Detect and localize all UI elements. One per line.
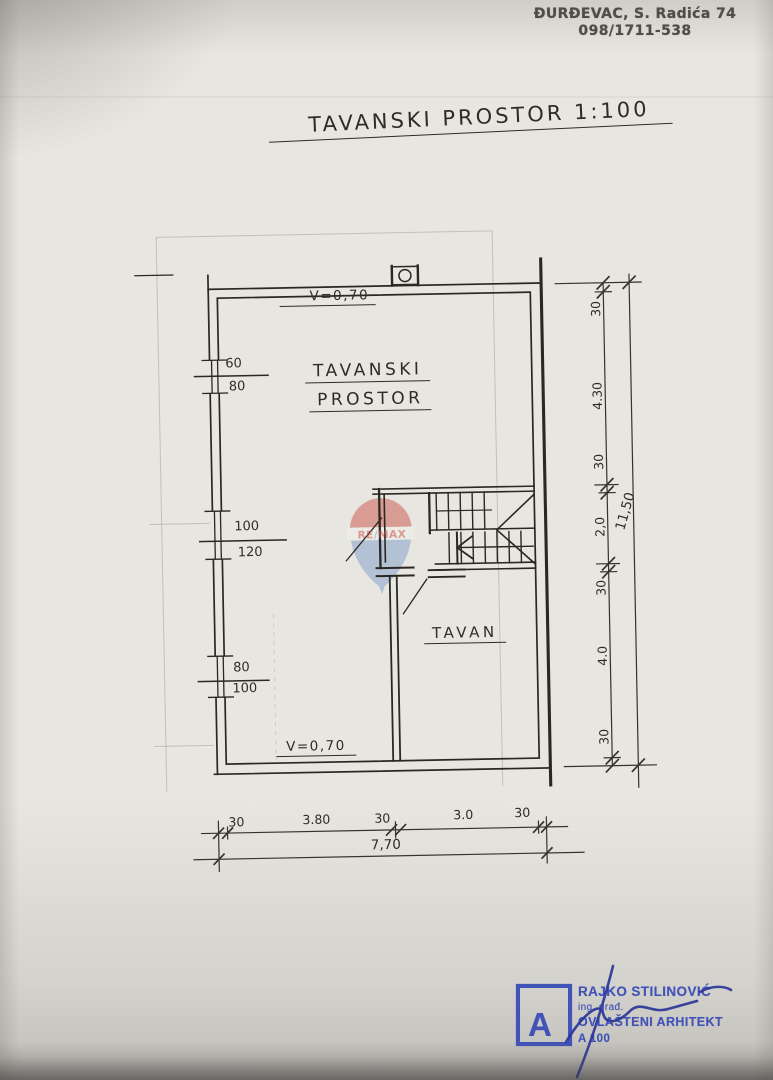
stamp-role: OVLAŠTENI ARHITEKT bbox=[578, 1015, 723, 1029]
window2-width: 100 bbox=[234, 519, 259, 534]
window1-height: 80 bbox=[229, 379, 246, 394]
dim-bottom-overall: 7,70 bbox=[371, 837, 401, 854]
window2-height: 120 bbox=[238, 545, 263, 560]
height-label-top-text: V=0,70 bbox=[279, 287, 375, 307]
room-label-tavan-text: TAVAN bbox=[424, 623, 506, 645]
walls bbox=[135, 259, 551, 793]
drawing-layer: RE/MAX TAVANSKI PROSTOR 1:100 V=0,70 TAV… bbox=[0, 0, 773, 1080]
dim-bottom-2: 30 bbox=[374, 810, 390, 825]
dim-bottom-1: 3.80 bbox=[302, 812, 330, 828]
window1-width: 60 bbox=[225, 356, 242, 371]
dim-bottom-0: 30 bbox=[228, 814, 244, 829]
stamp-name: RAJKO STILINOVIĆ bbox=[578, 984, 711, 999]
remax-max: MAX bbox=[378, 529, 406, 542]
dim-right-5: 4.0 bbox=[595, 646, 610, 666]
room-label-prostor-text: PROSTOR bbox=[309, 388, 432, 412]
paper-bottom-shadow bbox=[0, 1042, 773, 1080]
dim-right-3: 2,0 bbox=[592, 517, 607, 537]
chimney-symbol bbox=[392, 264, 418, 286]
room-label-prostor: PROSTOR bbox=[309, 388, 432, 410]
window3-width: 80 bbox=[233, 660, 250, 675]
window3-height: 100 bbox=[232, 681, 257, 696]
height-label-top: V=0,70 bbox=[279, 287, 375, 305]
dim-right-1: 4.30 bbox=[590, 382, 606, 410]
room-label-tavan: TAVAN bbox=[424, 623, 506, 643]
room-label-tavanski: TAVANSKI bbox=[305, 359, 431, 381]
dim-bottom-4: 30 bbox=[514, 805, 530, 820]
stamp-letter: A bbox=[528, 1006, 552, 1044]
dim-bottom-3: 3.0 bbox=[453, 807, 473, 822]
dim-right-6: 30 bbox=[596, 729, 611, 745]
scanned-floor-plan-sheet: ĐURĐEVAC, S. Radića 74 098/1711-538 bbox=[0, 0, 773, 1080]
stamp-square: A bbox=[516, 984, 572, 1046]
room-label-tavanski-line1: TAVANSKI bbox=[305, 359, 431, 383]
stamp-degree: ing. građ. bbox=[578, 1002, 624, 1013]
dim-right-0: 30 bbox=[588, 301, 603, 317]
dim-right-4: 30 bbox=[593, 580, 608, 596]
height-label-bottom-text: V=0,70 bbox=[276, 738, 356, 758]
height-label-bottom: V=0,70 bbox=[276, 738, 356, 756]
remax-re: RE bbox=[357, 529, 373, 541]
dim-right-2: 30 bbox=[591, 454, 606, 470]
remax-wordmark: RE/MAX bbox=[347, 528, 417, 541]
